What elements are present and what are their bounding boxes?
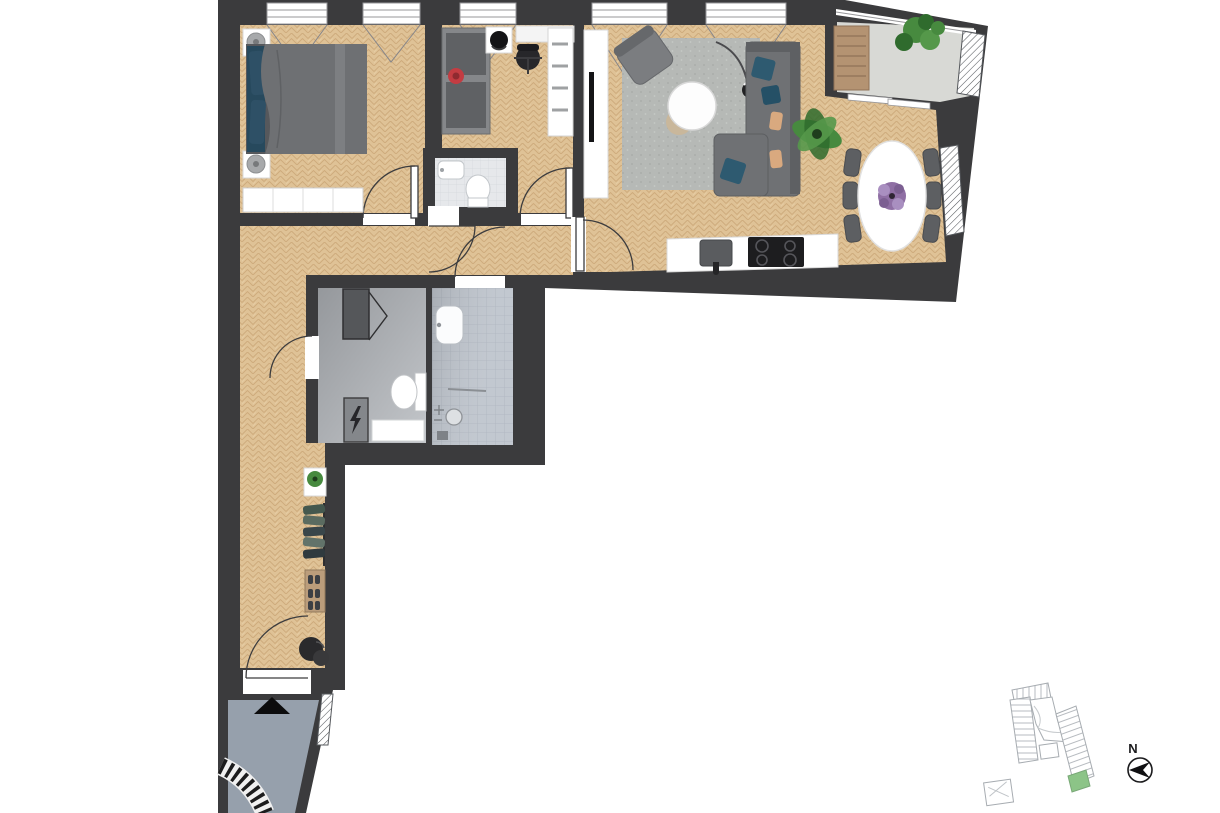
- wc-toilet-tank: [468, 198, 488, 207]
- laundry-room: [318, 288, 426, 443]
- site-wing-east: [1056, 706, 1094, 784]
- kids-room-window: [460, 3, 516, 24]
- lamp-bottom-bulb: [253, 161, 259, 167]
- bedroom-door-leaf: [411, 166, 418, 218]
- sofa-cushion-tan-1: [769, 111, 783, 130]
- coffee-table: [668, 82, 716, 130]
- sofa-cushion-tan-2: [769, 149, 783, 168]
- bathroom-door-threshold: [455, 276, 505, 288]
- north-compass: N: [1128, 741, 1152, 782]
- bag: [313, 650, 329, 666]
- tv: [589, 72, 594, 142]
- daybed-mattress-1: [446, 33, 486, 75]
- floor-plan-page: N: [0, 0, 1220, 813]
- bedroom-window-2: [363, 3, 420, 24]
- living-door-leaf: [576, 217, 584, 271]
- kids-door-threshold: [521, 214, 571, 225]
- bed-duvet: [261, 44, 367, 154]
- washing-machine: [343, 289, 369, 339]
- red-toy-center: [453, 73, 460, 80]
- tv-sideboard: [584, 30, 608, 198]
- double-bed: [246, 44, 367, 154]
- sofa-armrest: [746, 42, 800, 52]
- bedroom-door-threshold: [363, 214, 415, 225]
- bathroom-sink-faucet: [437, 323, 441, 327]
- floor-plan: N: [0, 0, 1220, 813]
- laundry-door-threshold: [305, 336, 319, 379]
- site-second-building: [984, 779, 1014, 806]
- laundry-toilet-bowl: [391, 375, 417, 409]
- living-window-1: [592, 3, 667, 24]
- compass-n-label: N: [1128, 741, 1137, 756]
- hanging-clothes: [303, 504, 326, 559]
- bed-pillow-2: [249, 100, 266, 145]
- wc-door-threshold: [428, 206, 459, 226]
- living-window-2: [706, 3, 786, 24]
- site-key-plan: [984, 683, 1094, 806]
- faucet-base: [713, 269, 719, 275]
- entrance-door-threshold: [243, 670, 311, 694]
- sofa-backrest: [790, 44, 800, 194]
- shower-head: [446, 409, 462, 425]
- shower-drain: [437, 431, 448, 440]
- purple-bouquet: [878, 182, 906, 210]
- bedroom-window-1: [267, 3, 327, 24]
- guest-wc: [423, 148, 518, 215]
- hall-plant-center: [313, 477, 318, 482]
- dining-set: [843, 141, 941, 251]
- bathroom: [432, 288, 513, 445]
- kids-door-leaf: [566, 168, 573, 218]
- sofa-cushion-teal-2: [761, 85, 782, 106]
- wc-sink-faucet: [440, 168, 444, 172]
- site-small-block-1: [1039, 743, 1059, 759]
- laundry-cabinet: [372, 420, 424, 441]
- daybed-mattress-2: [446, 82, 486, 128]
